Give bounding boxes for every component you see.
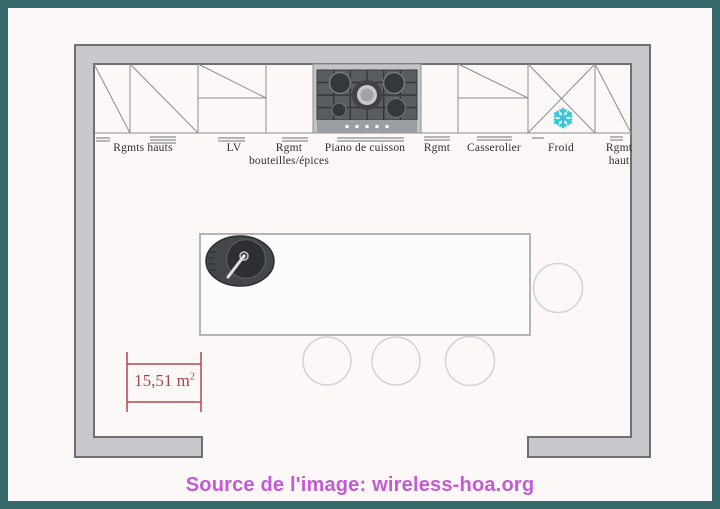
snowflake-icon	[554, 109, 573, 127]
image-source-caption: Source de l'image: wireless-hoa.org	[0, 474, 720, 497]
stool-circle	[534, 264, 583, 313]
kitchen-plan-image: Rgmts hauts LV Rgmtbouteilles/épices Pia…	[0, 0, 720, 509]
sink	[206, 236, 274, 286]
stool-circle	[372, 337, 420, 385]
area-value: 15,51 m2	[127, 371, 202, 391]
cabinet-label-piano-de-cuisson: Piano de cuisson	[325, 142, 406, 155]
floor-plan-svg	[0, 0, 720, 509]
stool-circle	[446, 337, 495, 386]
cabinet-label-rgmts-hauts: Rgmts hauts	[113, 142, 172, 155]
cabinet-label-rgmt-haut: Rgmthaut	[606, 142, 632, 168]
cabinet-label-froid: Froid	[548, 142, 574, 155]
cabinet-label-rgmt: Rgmt	[424, 142, 450, 155]
cooktop	[313, 64, 421, 133]
cabinet-label-casserolier: Casserolier	[467, 142, 521, 155]
cabinet-label-rgmt-bouteilles-epices: Rgmtbouteilles/épices	[249, 142, 329, 168]
area-superscript: 2	[190, 371, 195, 382]
cabinet-label-lv: LV	[227, 142, 242, 155]
stool-circle	[303, 337, 351, 385]
